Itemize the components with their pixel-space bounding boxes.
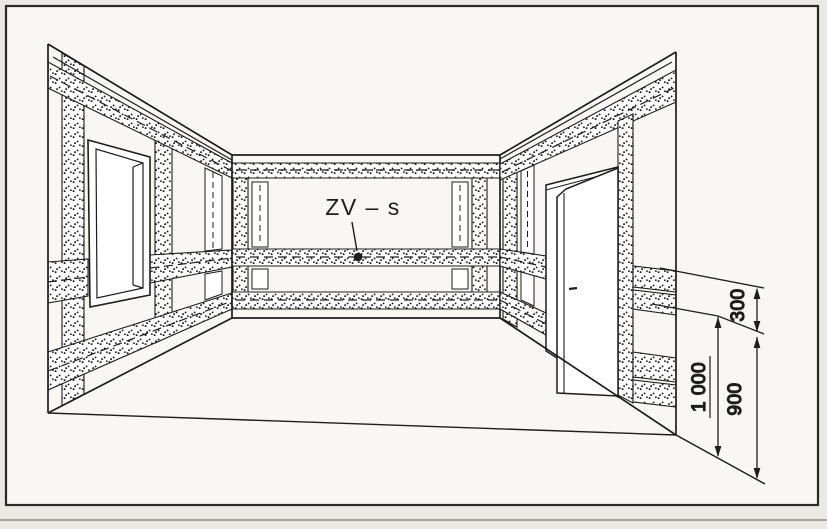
vertical-zone-band	[618, 114, 633, 403]
dimension-label-1000: 1 000	[689, 362, 710, 412]
window	[88, 140, 150, 307]
zone-label: ZV – s	[325, 194, 400, 220]
vertical-zone-band	[233, 163, 248, 309]
door-handle	[569, 288, 577, 289]
zone-point-marker	[354, 253, 363, 262]
vertical-zone-strip	[521, 165, 534, 306]
door	[546, 167, 618, 397]
vertical-zone-strip	[205, 168, 222, 300]
dimension-label-300: 300	[728, 288, 749, 321]
dimension-label-900: 900	[725, 382, 746, 415]
installation-zones-diagram: ZV – s 300 900 1 000	[0, 0, 827, 529]
horizontal-zone-band-bottom	[633, 380, 676, 407]
scanned-figure-page: ZV – s 300 900 1 000	[0, 0, 827, 529]
vertical-zone-band	[472, 163, 487, 309]
